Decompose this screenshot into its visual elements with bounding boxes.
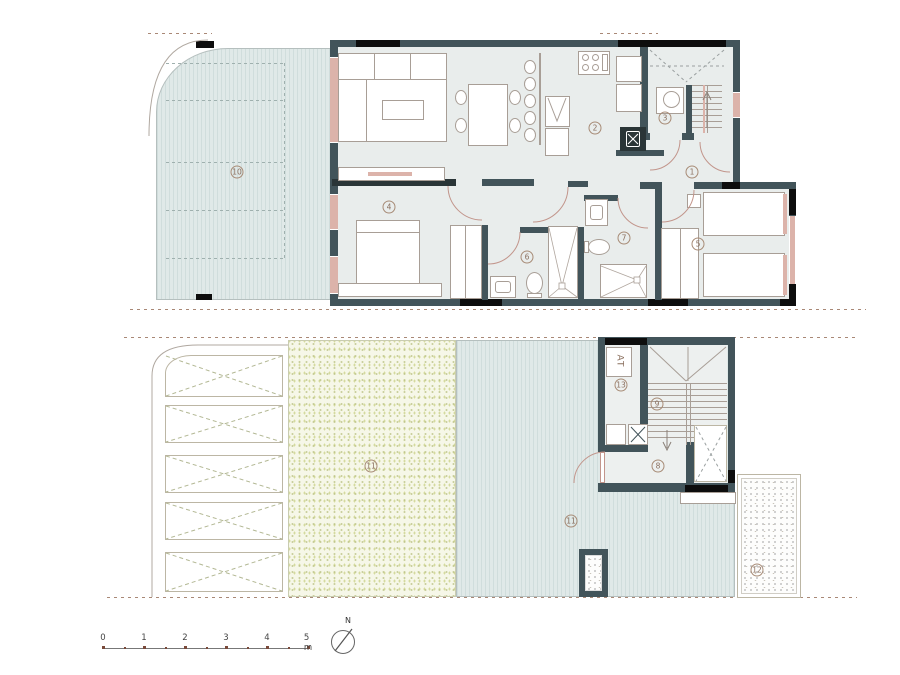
stair-arrow-upper (703, 92, 711, 128)
shower-drain-lines (549, 228, 646, 297)
parking-cross-dashes (166, 356, 282, 591)
linework-overlay (0, 0, 900, 675)
stair-arrow-lower (663, 430, 671, 450)
lower-sink-cross (631, 427, 645, 442)
driveway-curve (152, 345, 288, 597)
north-needle (335, 629, 352, 651)
stair-winder-lines (650, 347, 726, 381)
kitchen-sink-cross (628, 134, 638, 144)
door-arcs (448, 140, 730, 483)
stair-cut-dashes (650, 50, 724, 82)
void-cross-dashes (696, 427, 726, 481)
floor-plan-sheet: AT 012345 m N 1234567891011111213 (0, 0, 900, 675)
terrace-corner-curve (149, 40, 208, 136)
fridge-symbol (548, 98, 566, 121)
